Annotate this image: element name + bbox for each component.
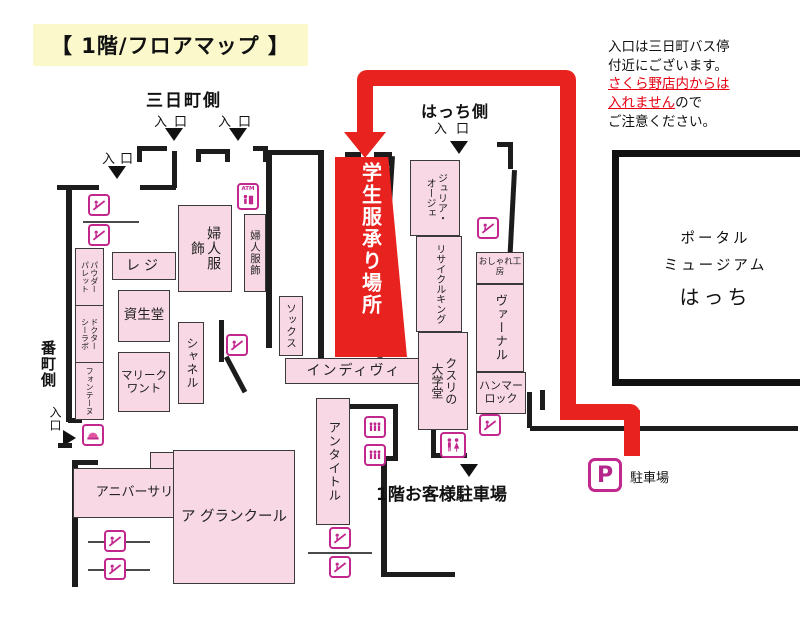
page-title: 【 1階/フロアマップ 】: [33, 24, 308, 66]
escalator-icon: [88, 194, 110, 216]
area-oshare-kobo: おしゃれ工房: [476, 252, 524, 284]
area-kusuri-no-daigakudo: クスリの大学堂: [418, 332, 468, 430]
escalator-icon: [479, 414, 501, 436]
area-label: クスリの大学堂: [429, 354, 457, 408]
area-label: フォンテーヌ: [85, 365, 94, 417]
area-hammer-lock: ハンマーロック: [476, 372, 526, 414]
atm-icon: ATM: [237, 183, 259, 210]
area-fujin-fukushoku-main: 婦人服飾: [178, 205, 232, 292]
wall: [140, 185, 176, 190]
floor-map: 【 1階/フロアマップ 】 入口は三日町バス停 付近にございます。 さくら野店内…: [0, 0, 800, 617]
area-label: ヴァーナル: [493, 293, 507, 363]
area-untitled: アンタイトル: [316, 398, 350, 525]
area-mary-quant: マリークワント: [118, 352, 170, 412]
entrance-arrow-icon: [229, 128, 247, 141]
hacchi-name-line: ポータル: [681, 227, 751, 248]
area-dr-ci-labo: ドクターシーラボ: [75, 305, 104, 363]
hacchi-name-line: ミュージアム: [664, 254, 768, 275]
route-line: [624, 410, 640, 456]
route-line: [357, 80, 373, 134]
area-label: おしゃれ工房: [477, 258, 523, 278]
note-line: 付近にございます。: [608, 57, 798, 76]
restroom-icon: [440, 432, 466, 458]
entrance-arrow-icon: [460, 464, 478, 477]
area-label: ソックス: [285, 302, 297, 350]
entrance-arrow-icon: [450, 141, 468, 154]
wall: [172, 151, 177, 188]
area-label: シャネル: [184, 333, 198, 393]
route-line: [357, 70, 576, 86]
wall: [219, 320, 224, 362]
elevator-icon: [364, 444, 386, 466]
elevator-icon: [364, 416, 386, 438]
wall: [137, 146, 142, 162]
area-label: ドクターシーラボ: [80, 315, 98, 353]
area-julia-oge: ジュリア・オージェ: [410, 160, 460, 236]
wall: [381, 456, 387, 576]
area-label: アンタイトル: [326, 420, 340, 504]
entrance-note: 入口は三日町バス停 付近にございます。 さくら野店内からは 入れませんので ご注…: [608, 38, 798, 131]
parking-symbol: P: [597, 463, 613, 488]
escalator-icon: [226, 334, 248, 356]
note-warning-line: 入れません: [608, 95, 675, 111]
note-warning-line: さくら野店内からは: [608, 75, 798, 94]
wall: [66, 188, 72, 422]
wall: [381, 572, 455, 577]
note-line: 入れませんので: [608, 94, 798, 113]
escalator-icon: [104, 558, 126, 580]
parking-icon: P: [588, 458, 622, 492]
area-label: レジ: [126, 258, 162, 274]
wall: [266, 150, 272, 348]
note-line: ので: [675, 95, 702, 111]
wall: [196, 149, 201, 162]
wall: [540, 390, 545, 410]
area-fujin-fukushoku-annex: 婦人服飾: [244, 214, 266, 292]
note-line: 入口は三日町バス停: [608, 38, 798, 57]
entrance-label: 入口: [102, 148, 138, 167]
route-arrowhead-icon: [344, 132, 386, 158]
area-label: リサイクルキング: [433, 240, 445, 328]
divider-line: [308, 552, 372, 554]
wall: [318, 150, 324, 358]
escalator-icon: [88, 224, 110, 246]
area-shiseido: 資生堂: [118, 290, 170, 342]
wall: [58, 443, 72, 448]
area-label: ジュリア・オージェ: [424, 169, 447, 227]
wall: [348, 404, 398, 409]
entrance-arrow-icon: [108, 166, 126, 179]
area-a-grand-cool: ア グランクール: [173, 450, 295, 584]
area-socks: ソックス: [279, 296, 303, 356]
wall: [76, 460, 98, 465]
entrance-label: 入口: [47, 406, 64, 446]
area-label: パウダーパレット: [80, 258, 98, 296]
wall: [57, 185, 99, 190]
escalator-icon: [104, 530, 126, 552]
area-label: マリークワント: [119, 369, 169, 395]
student-uniform-area: 学生服承り場所: [335, 157, 407, 357]
area-recycle-king: リサイクルキング: [416, 236, 462, 332]
parking-label: 駐車場: [630, 467, 669, 486]
area-label: 婦人服飾: [189, 221, 221, 277]
wall: [393, 404, 398, 460]
street-label-bancho: 番町側: [38, 340, 59, 402]
area-fontaine: フォンテーヌ: [75, 362, 104, 420]
customer-parking-label: 1階お客様駐車場: [376, 480, 507, 505]
area-label: インディヴィ: [306, 363, 401, 379]
area-label: 婦人服飾: [249, 229, 261, 277]
area-label: 資生堂: [124, 308, 165, 324]
street-label-sannichi: 三日町側: [146, 86, 222, 111]
divider-line: [83, 221, 139, 223]
area-label: ア グランクール: [181, 509, 287, 526]
hacchi-name-line: はっち: [680, 281, 752, 310]
atm-icon-label: ATM: [241, 187, 254, 193]
note-line: ご注意ください。: [608, 113, 798, 132]
area-chanel: シャネル: [178, 322, 204, 404]
area-powder-palette: パウダーパレット: [75, 248, 104, 306]
area-vernal: ヴァーナル: [476, 284, 524, 372]
hacchi-museum-building: ポータル ミュージアム はっち: [612, 150, 800, 386]
wall: [266, 150, 324, 155]
entrance-arrow-icon: [165, 128, 183, 141]
wall: [508, 142, 513, 169]
escalator-icon: [329, 527, 351, 549]
escalator-icon: [329, 556, 351, 578]
route-line: [560, 80, 576, 412]
road-line: [530, 426, 798, 431]
area-label: ハンマーロック: [477, 380, 525, 405]
wall: [224, 356, 247, 394]
area-indivi: インディヴィ: [285, 358, 423, 384]
wall: [527, 392, 532, 428]
escalator-icon: [477, 217, 499, 239]
student-uniform-label: 学生服承り場所: [357, 162, 386, 352]
wall: [225, 149, 230, 162]
area-reji: レジ: [112, 252, 176, 280]
service-counter-icon: [82, 424, 104, 446]
entrance-label: 入口: [434, 118, 478, 137]
